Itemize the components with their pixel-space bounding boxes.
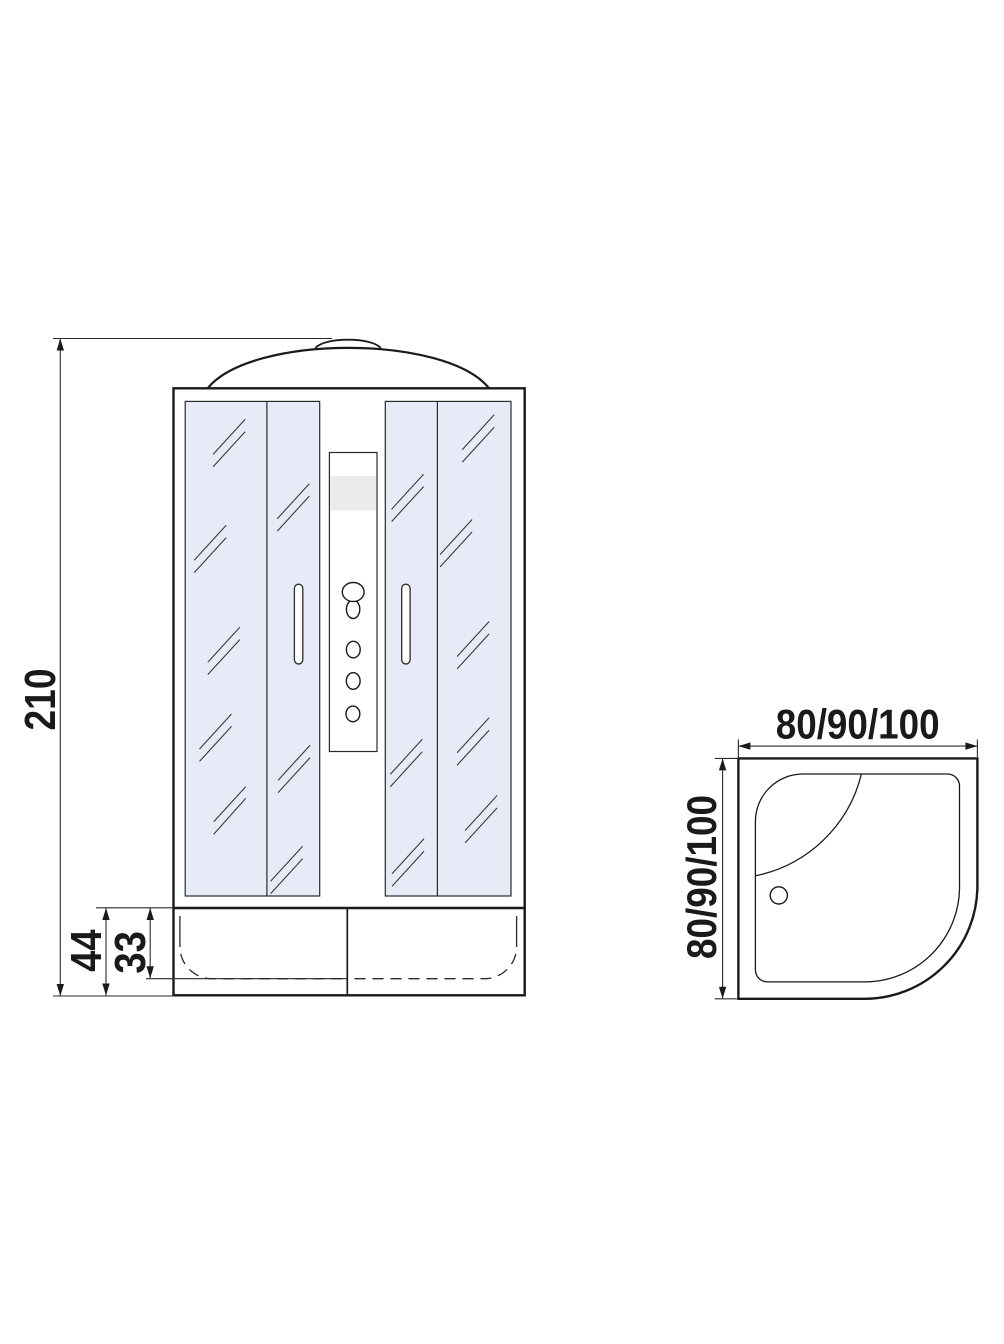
svg-text:210: 210 [16,669,65,731]
svg-text:80/90/100: 80/90/100 [776,701,940,748]
svg-text:80/90/100: 80/90/100 [678,795,725,959]
svg-text:33: 33 [106,931,155,974]
svg-text:44: 44 [62,929,111,972]
